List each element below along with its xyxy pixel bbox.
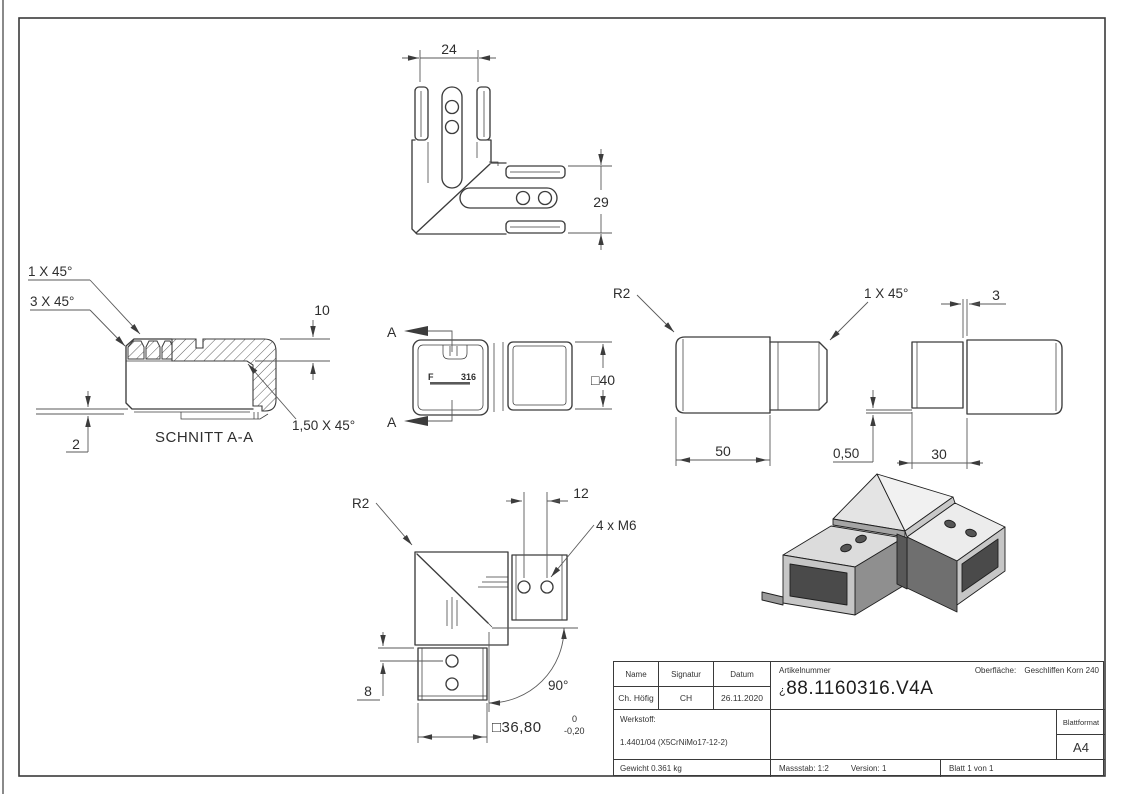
svg-text:R2: R2	[352, 496, 369, 511]
dim-top-24: 24	[402, 41, 496, 82]
isometric-view	[762, 474, 1005, 615]
svg-text:90°: 90°	[548, 678, 568, 693]
view-front: F 316 A A □40	[387, 324, 615, 430]
artikelnummer-value: ¿88.1160316.V4A	[779, 678, 933, 700]
label-radius-r2: R2	[613, 286, 674, 332]
artikelnummer-cell: Artikelnummer Oberfläche: Geschliffen Ko…	[771, 662, 1105, 710]
dim-bottom-90: 90°	[489, 628, 578, 712]
werkstoff-value: 1.4401/04 (X5CrNiMo17-12-2)	[620, 738, 728, 747]
svg-text:12: 12	[573, 485, 589, 501]
svg-text:4 x M6: 4 x M6	[596, 518, 637, 533]
dim-section-2: 2	[36, 391, 128, 452]
dim-bottom-368: □36,80 0 -0,20	[418, 703, 585, 743]
dim-side-050: 0,50	[833, 390, 912, 462]
oberflaeche-value: Geschliffen Korn 240	[1024, 666, 1099, 675]
value-name: Ch. Höfig	[614, 687, 659, 710]
svg-text:□36,80: □36,80	[492, 719, 542, 736]
label-chamfer-side: 1 X 45°	[830, 286, 908, 340]
svg-text:3 X 45°: 3 X 45°	[30, 294, 74, 309]
svg-text:A: A	[387, 414, 397, 430]
section-caption: SCHNITT A-A	[155, 429, 254, 446]
svg-text:29: 29	[593, 194, 609, 210]
oberflaeche: Oberfläche: Geschliffen Korn 240	[969, 666, 1099, 675]
stamp-f: F	[428, 372, 434, 382]
oberflaeche-label: Oberfläche:	[975, 666, 1016, 675]
empty-cell	[771, 710, 1057, 760]
header-name: Name	[614, 662, 659, 687]
gewicht: Gewicht 0.361 kg	[614, 760, 771, 777]
svg-text:1 X 45°: 1 X 45°	[28, 264, 72, 279]
header-blattformat: Blattformat	[1057, 710, 1105, 735]
svg-text:2: 2	[72, 436, 80, 452]
svg-text:□40: □40	[591, 372, 615, 388]
massstab-cell: Massstab: 1:2 Version: 1	[771, 760, 941, 777]
section-hatch-body	[172, 339, 276, 411]
dim-bottom-12: 12	[506, 485, 589, 578]
svg-text:1,50 X 45°: 1,50 X 45°	[292, 418, 355, 433]
massstab: Massstab: 1:2	[779, 764, 829, 773]
svg-text:-0,20: -0,20	[564, 726, 585, 736]
sheet-edge-line	[2, 0, 4, 794]
view-bottom: 12 4 x M6 R2 8	[352, 485, 637, 743]
header-artikelnummer: Artikelnummer	[779, 666, 831, 675]
value-signatur: CH	[659, 687, 714, 710]
svg-text:50: 50	[715, 443, 731, 459]
label-radius-r2-bottom: R2	[352, 496, 412, 545]
svg-text:0: 0	[572, 714, 577, 724]
blatt: Blatt 1 von 1	[941, 760, 1105, 777]
view-side-right: 3 30 0,50	[833, 287, 1062, 469]
svg-text:30: 30	[931, 446, 947, 462]
view-section: 10 2 1 X 45° 3 X 45°	[28, 264, 355, 452]
svg-text:8: 8	[364, 683, 372, 699]
dim-bottom-8: 8	[357, 632, 443, 700]
werkstoff-cell: Werkstoff: 1.4401/04 (X5CrNiMo17-12-2)	[614, 710, 771, 760]
dim-side-3: 3	[941, 287, 1006, 338]
value-datum: 26.11.2020	[714, 687, 771, 710]
view-top: 24 29	[402, 41, 612, 250]
version: Version: 1	[851, 764, 887, 773]
svg-text:24: 24	[441, 41, 457, 57]
svg-text:3: 3	[992, 287, 1000, 303]
svg-text:0,50: 0,50	[833, 446, 859, 461]
view-side-left: R2 1 X 45° 50	[613, 286, 908, 466]
svg-text:A: A	[387, 324, 397, 340]
svg-text:10: 10	[314, 302, 330, 318]
dim-side-30: 30	[897, 412, 983, 469]
title-block: Name Signatur Datum Ch. Höfig CH 26.11.2…	[613, 661, 1104, 776]
werkstoff-label: Werkstoff:	[620, 715, 656, 724]
value-blattformat: A4	[1057, 735, 1105, 760]
drawing-sheet: 24 29	[0, 0, 1123, 794]
label-thread: 4 x M6	[551, 518, 637, 577]
stamp-fine-print	[430, 382, 470, 385]
header-datum: Datum	[714, 662, 771, 687]
dim-side-50: 50	[676, 415, 770, 466]
dim-front-40: □40	[575, 342, 615, 409]
dim-top-29: 29	[568, 149, 612, 250]
header-signatur: Signatur	[659, 662, 714, 687]
svg-text:1 X 45°: 1 X 45°	[864, 286, 908, 301]
stamp-code: 316	[461, 372, 476, 382]
svg-text:R2: R2	[613, 286, 630, 301]
cut-arrow-top: A	[387, 324, 452, 352]
